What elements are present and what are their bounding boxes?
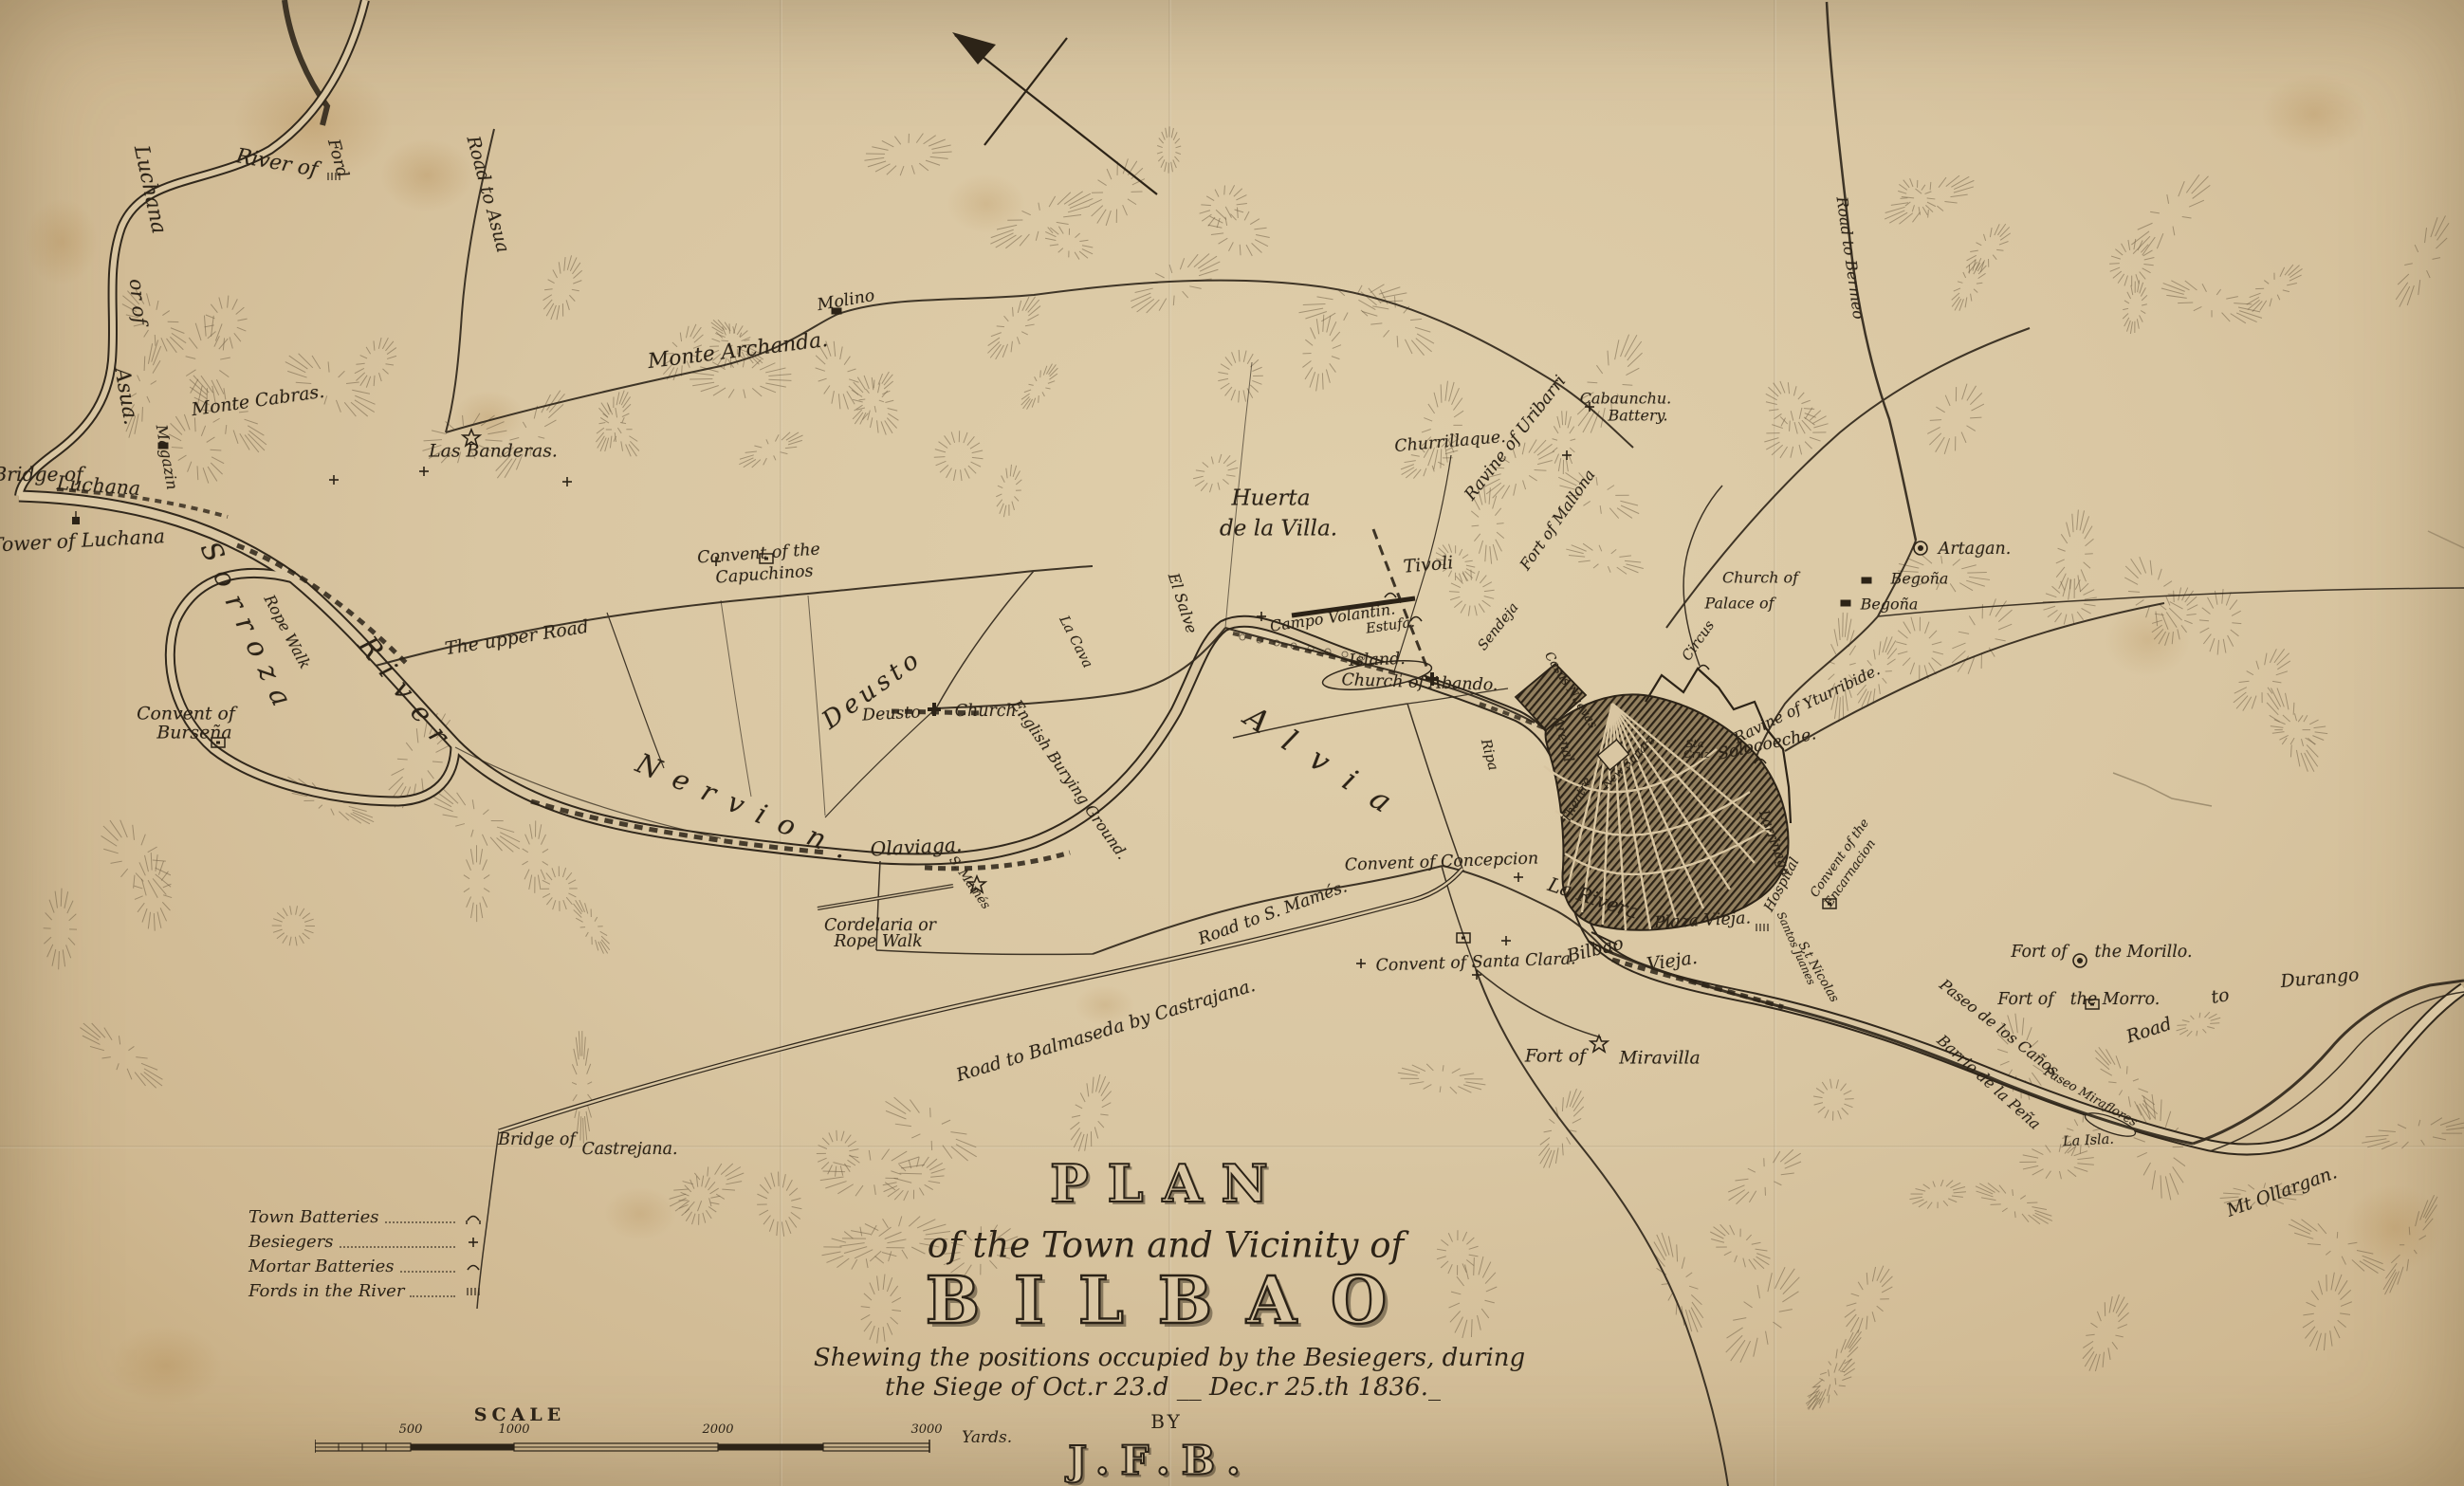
map-caption-line1: Shewing the positions occupied by the Be…	[814, 1344, 1525, 1372]
legend-item-label: Town Batteries	[248, 1207, 379, 1227]
legend-item-label: Besiegers	[248, 1232, 334, 1252]
scale-tick-label: 3000	[910, 1422, 942, 1437]
legend-item: Fords in the River	[248, 1280, 486, 1301]
map-label: La Cava	[1056, 614, 1094, 670]
map-label: Nervion.	[632, 746, 867, 871]
map-label: Fort of	[2011, 943, 2067, 962]
map-label: Monte Archanda.	[647, 328, 830, 374]
map-label: Fort of	[1525, 1047, 1586, 1067]
legend-item-label: Fords in the River	[248, 1281, 404, 1301]
map-label: Arenal	[1550, 715, 1575, 763]
scale-tick-label: 1000	[498, 1422, 529, 1437]
map-author-initials: J.F.B.	[1068, 1438, 1252, 1484]
map-label: Road to Balmaseda by Castrajana.	[954, 976, 1258, 1086]
map-label: Vieja.	[1646, 948, 1699, 975]
map-label: Rope Walk	[834, 932, 922, 951]
map-label: Plaza Vieja.	[1653, 908, 1751, 932]
map-label: the Morro.	[2070, 990, 2161, 1009]
map-label: Castrejana.	[581, 1140, 677, 1159]
legend-leader-dots	[400, 1271, 456, 1273]
map-label: La Rivera	[1545, 872, 1642, 923]
map-label: Mt Ollargan.	[2224, 1163, 2340, 1220]
map-label: or of	[125, 278, 152, 325]
map-label: El Salve	[1165, 571, 1201, 635]
map-label: Bridge of	[498, 1130, 576, 1149]
map-label: Molino	[816, 286, 876, 315]
legend-leader-dots	[385, 1221, 456, 1223]
legend-leader-dots	[340, 1246, 455, 1248]
map-label: Luchana	[56, 471, 141, 500]
legend-item: Town Batteries	[248, 1206, 486, 1227]
map-label: Begoña	[1891, 570, 1949, 588]
map-label: Churrillaque.	[1394, 428, 1507, 456]
map-label: Begoña	[1861, 596, 1919, 614]
map-label: Fort of	[1997, 990, 2053, 1009]
map-label: Battery.	[1608, 407, 1667, 425]
map-label: the Morillo.	[2095, 943, 2193, 962]
map-label: Asua.	[109, 366, 142, 427]
map-label: Fort of Mallona	[1516, 466, 1598, 573]
ford-hatch-icon	[461, 1282, 486, 1301]
map-label: English Burying Ground.	[1008, 696, 1132, 862]
map-title: PLAN	[1050, 1153, 1287, 1214]
map-label: Deusto	[862, 703, 922, 725]
map-label: Capuchinos	[715, 561, 814, 587]
map-label: River of	[234, 144, 320, 182]
map-label: Church of Abando.	[1341, 670, 1499, 695]
map-label: Tower of Luchana	[0, 524, 166, 557]
map-label: Luchana	[129, 143, 171, 236]
map-label: Palace of	[1704, 595, 1774, 613]
map-label: Larrinaga	[1756, 808, 1793, 878]
map-label: Sendeja	[1476, 600, 1522, 653]
legend-leader-dots	[410, 1295, 455, 1297]
map-label: to	[2210, 985, 2231, 1008]
besieger-cross-icon	[461, 1233, 486, 1252]
legend-item-label: Mortar Batteries	[248, 1257, 395, 1276]
map-label: Tivoli	[1403, 553, 1454, 578]
map-label: Artagan.	[1939, 540, 2011, 559]
map-label: Miravilla	[1619, 1049, 1701, 1069]
map-label: Burseña	[156, 724, 231, 743]
map-label: New Square	[1599, 733, 1657, 791]
map-label: Ford	[323, 138, 352, 180]
map-label: Durango	[2280, 965, 2361, 992]
map-caption-line2: the Siege of Oct.r 23.d __ Dec.r 25.th 1…	[885, 1373, 1441, 1402]
map-label: Convent of Concepcion	[1345, 849, 1539, 874]
map-label: S. Mamés	[946, 853, 992, 912]
map-label: Circus	[1680, 618, 1718, 664]
map-label: Convent of	[137, 705, 235, 725]
map-label: Las Banderas.	[429, 442, 558, 462]
town-battery-icon	[461, 1208, 486, 1227]
scale-tick-label: 500	[399, 1422, 423, 1437]
map-byline: BY	[1150, 1410, 1183, 1433]
map-label: Cruz	[1683, 747, 1710, 761]
map-label: Olaviaga.	[870, 833, 963, 860]
map-label: Monte Cabras.	[191, 382, 326, 420]
legend: Town BatteriesBesiegersMortar BatteriesF…	[248, 1206, 486, 1305]
scale-unit-label: Yards.	[962, 1428, 1012, 1447]
scale-bar: 500100020003000 Yards.	[315, 1422, 1036, 1460]
map-label: La Isla.	[2063, 1132, 2115, 1150]
map-title-bilbao: BILBAO	[926, 1263, 1422, 1339]
map-label: Cabaunchu.	[1580, 390, 1671, 408]
map-label: Theatre.	[1559, 772, 1597, 825]
map-subtitle: of the Town and Vicinity of	[928, 1225, 1404, 1266]
map-label: Huerta	[1231, 486, 1310, 511]
bilbao-map-sheet: River ofLuchanaor ofAsua.FordBridge ofLu…	[0, 0, 2464, 1486]
scale-tick-label: 2000	[702, 1422, 733, 1437]
mortar-arc-icon	[461, 1257, 486, 1276]
map-label: Convent of Santa Clara.	[1375, 949, 1576, 975]
map-label: Magazin	[153, 423, 182, 491]
map-label: Church of	[1722, 569, 1798, 587]
map-label: Road to Bermeo	[1833, 195, 1868, 321]
map-label: The upper Road	[444, 617, 590, 660]
map-label: de la Villa.	[1220, 516, 1337, 541]
map-label: Ripa	[1478, 738, 1500, 772]
legend-item: Mortar Batteries	[248, 1256, 486, 1276]
map-label: Island.	[1349, 650, 1406, 670]
map-label: Road	[2124, 1014, 2175, 1047]
map-label: Paseo Miraflores	[2041, 1065, 2140, 1130]
map-label: Road to Asua	[463, 134, 513, 255]
legend-item: Besiegers	[248, 1231, 486, 1252]
map-label: Alvia	[1239, 698, 1418, 832]
map-label: Road to S. Mamés.	[1196, 877, 1350, 948]
